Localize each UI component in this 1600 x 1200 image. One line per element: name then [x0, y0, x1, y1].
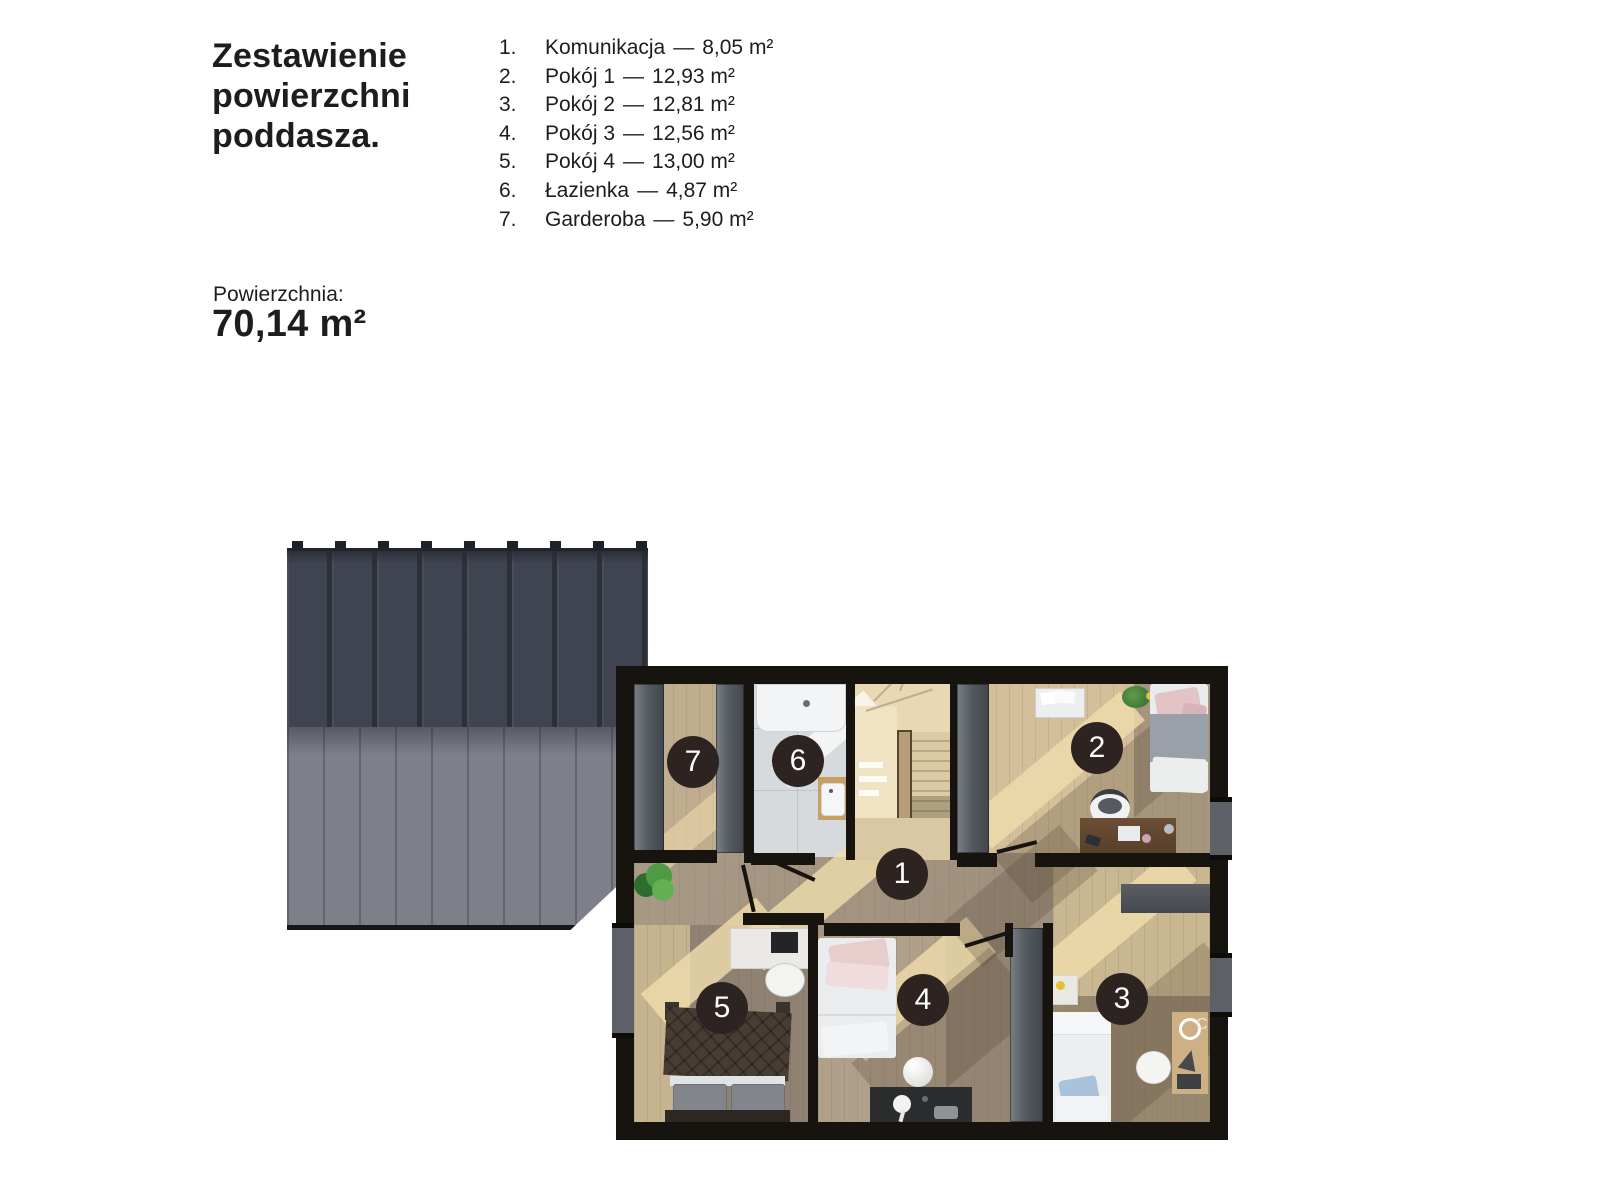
- floor-plan: C: [616, 666, 1228, 1140]
- page: { "header": { "title_lines": ["Zestawien…: [0, 0, 1600, 1200]
- wardrobe-unit: [716, 684, 744, 853]
- legend-name: Pokój 1: [545, 63, 615, 92]
- legend-num: 6.: [499, 177, 545, 206]
- stair-light-bar: [859, 762, 883, 768]
- laptop: [1118, 826, 1140, 841]
- pouf: [1136, 1051, 1171, 1084]
- wall: [1005, 923, 1013, 957]
- desk-item: [922, 1096, 928, 1102]
- legend-dash: —: [653, 206, 674, 235]
- legend-item-3: 3.Pokój 2—12,81 m²: [499, 91, 773, 120]
- legend-dash: —: [637, 177, 658, 206]
- wall: [846, 684, 855, 860]
- wardrobe-unit: [1010, 928, 1043, 1122]
- desk-item: [1142, 834, 1151, 843]
- bed-headboard: [665, 1110, 790, 1122]
- wall: [744, 684, 754, 863]
- desk-item: [1164, 824, 1174, 834]
- room-marker-4: 4: [897, 974, 949, 1026]
- legend-num: 5.: [499, 148, 545, 177]
- wall: [1043, 923, 1053, 1122]
- wardrobe-unit: [634, 684, 664, 853]
- legend-item-5: 5.Pokój 4—13,00 m²: [499, 148, 773, 177]
- window: [612, 923, 634, 1038]
- room-marker-7: 7: [667, 736, 719, 788]
- roof-upper-slope: [287, 548, 648, 727]
- bed-pillow-white: [821, 1021, 889, 1057]
- legend-num: 4.: [499, 120, 545, 149]
- wall: [1035, 853, 1210, 867]
- desk-item-dark: [1177, 1074, 1201, 1089]
- legend-area: 8,05 m²: [702, 34, 773, 63]
- legend-num: 7.: [499, 206, 545, 235]
- legend-name: Pokój 2: [545, 91, 615, 120]
- desk-pad: [934, 1106, 958, 1119]
- bed-pillow-gray: [673, 1084, 727, 1112]
- legend-item-2: 2.Pokój 1—12,93 m²: [499, 63, 773, 92]
- papers: [1054, 690, 1075, 704]
- wall: [957, 853, 997, 867]
- legend-dash: —: [623, 148, 644, 177]
- roof-plan: [287, 548, 648, 930]
- wall: [950, 684, 957, 860]
- wardrobe-unit: [957, 684, 989, 853]
- legend-num: 1.: [499, 34, 545, 63]
- legend-dash: —: [623, 120, 644, 149]
- legend-name: Komunikacja: [545, 34, 665, 63]
- wall: [634, 850, 717, 863]
- floor-lamp-ball: [903, 1057, 933, 1087]
- legend-dash: —: [623, 91, 644, 120]
- bed-fold-line: [818, 1014, 896, 1016]
- stair-light-bar: [859, 776, 887, 782]
- page-title-line-2: powierzchni: [212, 76, 411, 116]
- bathroom-sink: [821, 783, 845, 816]
- laptop: [771, 932, 798, 953]
- bathtub: [756, 684, 846, 732]
- nightstand: [1050, 975, 1078, 1005]
- lamp-yellow: [1056, 981, 1065, 990]
- window: [1210, 953, 1232, 1017]
- legend-num: 3.: [499, 91, 545, 120]
- legend-area: 12,93 m²: [652, 63, 735, 92]
- legend-dash: —: [673, 34, 694, 63]
- legend-area: 5,90 m²: [682, 206, 753, 235]
- total-area-value: 70,14 m²: [212, 303, 367, 346]
- stair-light-bar: [859, 790, 879, 796]
- page-title-line-3: poddasza.: [212, 116, 411, 156]
- room-marker-2: 2: [1071, 722, 1123, 774]
- room-marker-6: 6: [772, 735, 824, 787]
- bed-duvet-gray: [1150, 714, 1208, 762]
- legend-name: Pokój 4: [545, 148, 615, 177]
- wall: [824, 923, 960, 936]
- bed-pillow-gray: [731, 1084, 785, 1112]
- roof-ridge-line: [287, 548, 648, 551]
- wall: [743, 913, 824, 925]
- desk-chair: [765, 963, 805, 997]
- legend-num: 2.: [499, 63, 545, 92]
- legend-name: Garderoba: [545, 206, 645, 235]
- legend-area: 13,00 m²: [652, 148, 735, 177]
- room-marker-3: 3: [1096, 973, 1148, 1025]
- chair-seat: [1098, 798, 1122, 814]
- bathtub-drain: [803, 700, 810, 707]
- legend-area: 4,87 m²: [666, 177, 737, 206]
- bed-pillow-white: [1056, 1096, 1108, 1120]
- roof-lower-slope: [287, 727, 648, 930]
- room-legend: 1.Komunikacja—8,05 m² 2.Pokój 1—12,93 m²…: [499, 34, 773, 234]
- legend-name: Łazienka: [545, 177, 629, 206]
- window: [1210, 797, 1232, 860]
- legend-name: Pokój 3: [545, 120, 615, 149]
- legend-item-1: 1.Komunikacja—8,05 m²: [499, 34, 773, 63]
- stair-railing: [897, 730, 912, 824]
- stair-tread-shadow: [908, 796, 950, 818]
- page-title-line-1: Zestawienie: [212, 36, 411, 76]
- wall: [808, 925, 818, 1122]
- plant-hall: [652, 879, 674, 901]
- page-title: Zestawienie powierzchni poddasza.: [212, 36, 411, 156]
- legend-area: 12,56 m²: [652, 120, 735, 149]
- room-marker-1: 1: [876, 848, 928, 900]
- cabinet-block: [1121, 884, 1210, 913]
- plan-interior: C: [634, 684, 1210, 1122]
- decor-letter: C: [1196, 1016, 1208, 1034]
- sink-faucet: [829, 789, 833, 793]
- legend-area: 12,81 m²: [652, 91, 735, 120]
- roof-eaves-line: [287, 925, 648, 930]
- room-marker-5: 5: [696, 982, 748, 1034]
- legend-item-7: 7.Garderoba—5,90 m²: [499, 206, 773, 235]
- bed-duvet-white: [1151, 757, 1207, 794]
- legend-dash: —: [623, 63, 644, 92]
- legend-item-6: 6.Łazienka—4,87 m²: [499, 177, 773, 206]
- legend-item-4: 4.Pokój 3—12,56 m²: [499, 120, 773, 149]
